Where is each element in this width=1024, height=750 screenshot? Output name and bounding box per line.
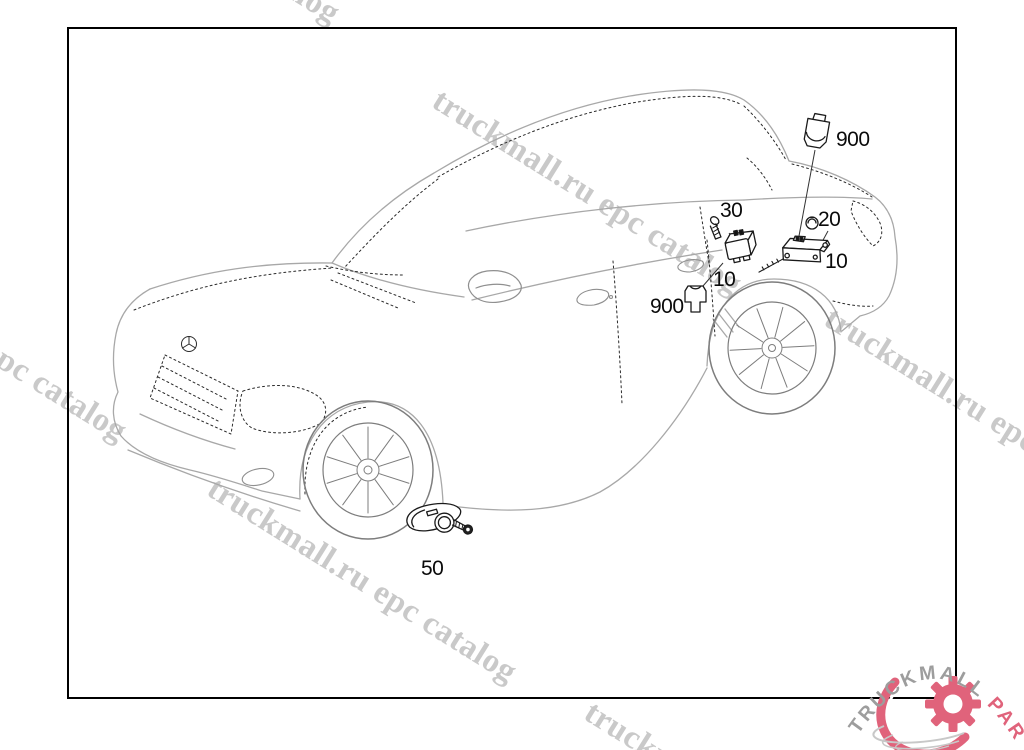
callout-50-wheel-sensor: 50	[421, 558, 443, 579]
brand-logo: TRUCKMALL PARTS	[0, 0, 1024, 750]
part-900-antenna-connector-rear-icon	[803, 113, 830, 149]
logo-text: TRUCKMALL PARTS	[0, 0, 1024, 746]
callout-10-module-right: 10	[825, 251, 847, 272]
fog-lamp	[241, 466, 276, 488]
diagram-drawing: TRUCKMALL PARTS	[0, 0, 1024, 750]
side-mirror	[469, 271, 522, 303]
star-emblem	[182, 337, 197, 352]
headlight	[240, 385, 326, 432]
callout-900-connector-left: 900	[650, 296, 684, 317]
grille	[150, 355, 238, 434]
part-10-control-module-left-icon	[723, 227, 759, 264]
callout-900-rear-antenna: 900	[836, 129, 870, 150]
part-20-grommet-icon	[806, 217, 818, 229]
car-accent-lines	[134, 96, 873, 494]
part-10-control-module-right-icon	[757, 234, 831, 272]
rear-wheel	[709, 282, 835, 414]
callout-10-module-left: 10	[713, 269, 735, 290]
callout-30-screw: 30	[720, 200, 742, 221]
car-illustration	[113, 90, 897, 539]
logo-text-suffix: PARTS	[0, 0, 1024, 746]
tail-light	[851, 201, 882, 246]
tpms-parts-diagram-page: truckmall.ru epc catalog truckmall.ru ep…	[0, 0, 1024, 750]
part-900-connector-left-icon	[685, 286, 706, 312]
callout-20-grommet: 20	[818, 209, 840, 230]
